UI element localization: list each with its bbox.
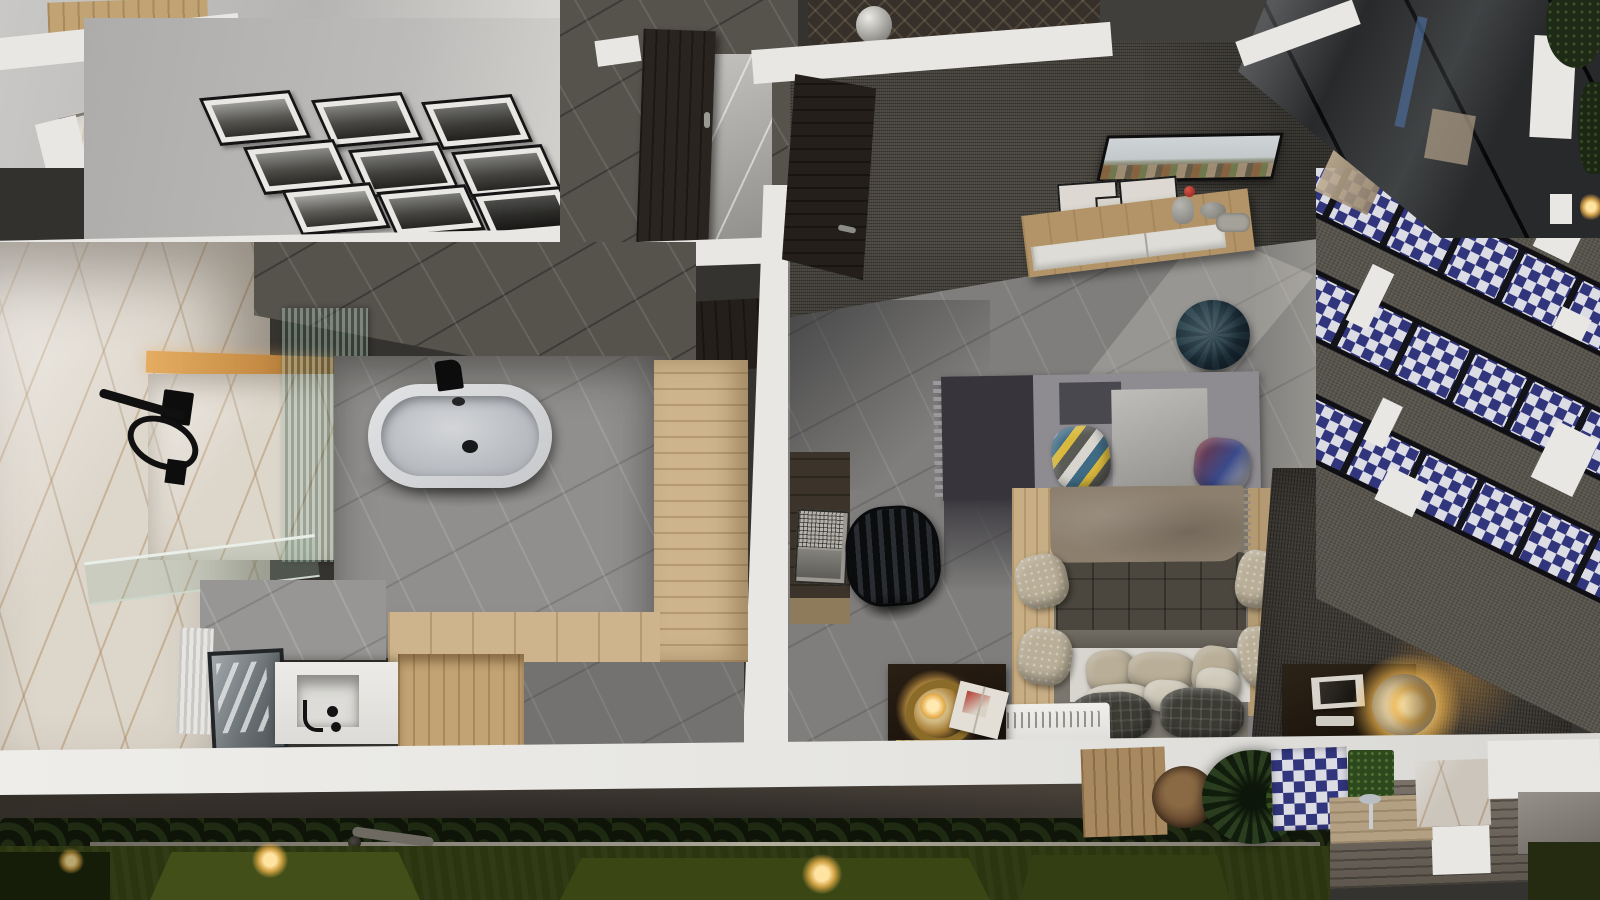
desk-lower-shelf	[790, 598, 850, 624]
garden-light	[58, 848, 84, 874]
garden-light	[802, 854, 842, 894]
chair-shadow	[860, 592, 924, 622]
wood-floor-vertical	[654, 360, 748, 662]
outdoor-shower	[1356, 794, 1388, 832]
render-stage	[0, 0, 1600, 900]
patio-marble-patch	[1415, 759, 1491, 828]
bathtub-overflow	[452, 397, 465, 406]
rug-light-section	[1111, 388, 1209, 498]
bathtub	[368, 384, 552, 488]
faucet-knob	[331, 722, 341, 732]
laptop	[794, 509, 850, 586]
faucet-knob	[327, 706, 338, 717]
door-handle	[704, 112, 710, 128]
bedroom-door	[782, 74, 876, 280]
photo	[463, 153, 551, 192]
tv-city-detail	[1100, 163, 1274, 180]
photo	[255, 148, 343, 187]
photo	[389, 193, 474, 229]
mirror-reflection	[216, 661, 270, 734]
duvet-quilting	[1056, 552, 1246, 640]
vanity	[275, 662, 399, 744]
deck-step	[1431, 825, 1491, 875]
corner-dark-green	[1528, 842, 1600, 900]
decor-vase	[1172, 197, 1194, 224]
throw-fringe	[1244, 489, 1252, 553]
tub-faucet	[434, 358, 464, 391]
photo	[433, 103, 521, 142]
lawn-dark-corner	[0, 852, 110, 900]
bathroom-floor-lower	[200, 580, 386, 660]
faucet-spout	[303, 700, 323, 732]
patio-white-wall	[1488, 739, 1600, 799]
laptop-keyboard	[798, 511, 844, 549]
bathtub-drain	[462, 440, 478, 453]
shower-valve	[164, 459, 187, 486]
lawn-light-patch	[560, 858, 990, 900]
rug-dark-section	[941, 375, 1035, 501]
dark-plaid-pillow	[1159, 687, 1245, 742]
teal-pouf	[1176, 300, 1250, 370]
photo	[484, 195, 569, 231]
roof-plant	[1578, 82, 1600, 174]
bed-duvet	[1056, 552, 1246, 640]
roof-blue-reflection	[1394, 16, 1427, 128]
garden-light	[252, 842, 288, 878]
decor-red-ball	[1184, 186, 1195, 197]
decor-tray	[1216, 213, 1250, 232]
bed-throw	[1050, 485, 1245, 563]
bath-cabinet	[398, 654, 524, 748]
bathtub-basin	[381, 396, 539, 476]
closet-door	[636, 29, 715, 245]
roof-beige-reflection	[1424, 109, 1476, 166]
wall-sconce-glow	[1580, 192, 1600, 222]
photo	[211, 99, 299, 138]
photo	[323, 101, 411, 140]
photo	[360, 151, 448, 190]
bathroom-floor-right-dark	[522, 652, 744, 748]
decor-sphere	[856, 6, 892, 44]
tv-picture	[1100, 136, 1280, 180]
roof-white-sliver	[1550, 194, 1572, 224]
photo	[294, 191, 379, 227]
shower-head-outdoor	[1359, 794, 1381, 804]
ring-lamp-bulb	[920, 693, 946, 719]
tv-screen	[1096, 132, 1284, 182]
lawn-light-patch	[1020, 855, 1230, 900]
laptop-screen-back	[796, 549, 841, 579]
